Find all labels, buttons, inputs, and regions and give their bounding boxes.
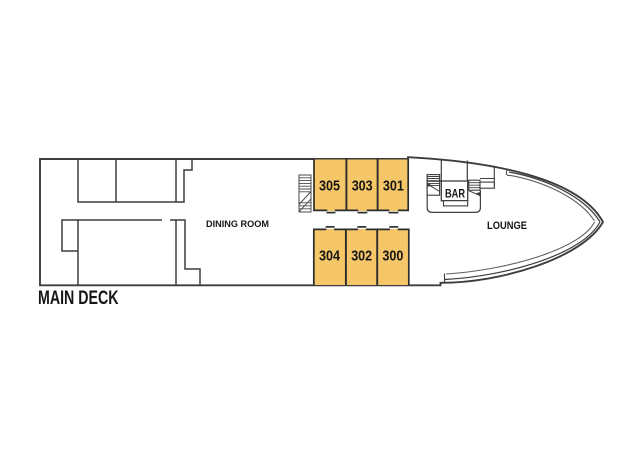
svg-text:304: 304: [319, 249, 340, 265]
svg-text:305: 305: [319, 179, 340, 195]
svg-text:300: 300: [382, 249, 403, 265]
svg-text:DINING ROOM: DINING ROOM: [206, 219, 269, 230]
svg-text:MAIN DECK: MAIN DECK: [38, 287, 119, 309]
svg-text:LOUNGE: LOUNGE: [487, 220, 527, 232]
svg-text:302: 302: [351, 249, 372, 265]
svg-text:303: 303: [352, 179, 373, 195]
svg-text:BAR: BAR: [445, 189, 466, 201]
svg-text:301: 301: [383, 179, 404, 195]
